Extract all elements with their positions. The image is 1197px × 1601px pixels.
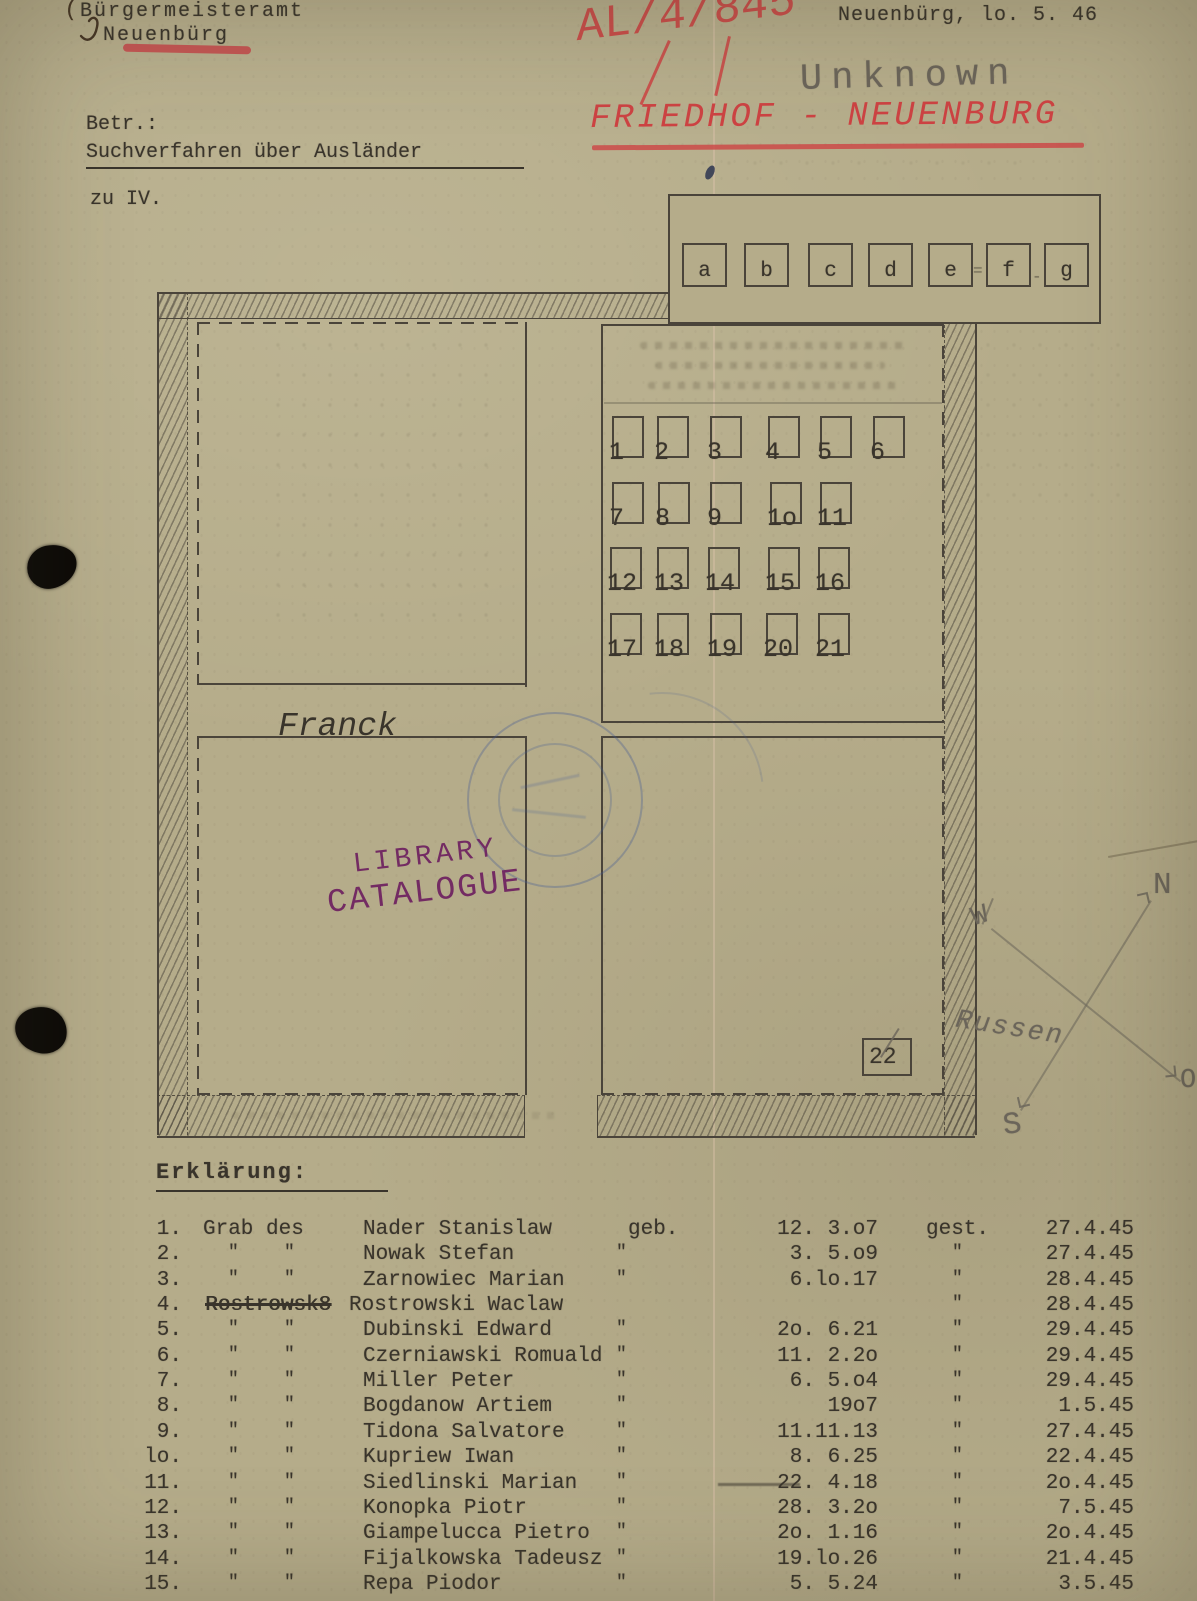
geb-ditto: ": [616, 1243, 627, 1263]
death-date: 27.4.45: [998, 1218, 1134, 1241]
legend-cell-f: f: [986, 243, 1031, 287]
grave-name: Nader Stanislaw: [363, 1218, 552, 1241]
death-date: 28.4.45: [998, 1269, 1134, 1292]
ditto-mark: ": [228, 1472, 239, 1492]
gest-ditto: ": [952, 1370, 963, 1390]
ditto-mark: ": [284, 1345, 295, 1365]
grave-name: Nowak Stefan: [363, 1243, 514, 1266]
grave-name: Dubinski Edward: [363, 1319, 552, 1342]
ditto-mark: ": [228, 1446, 239, 1466]
list-row: 7.""Miller Peter"6. 5.o4"29.4.45: [0, 1370, 1197, 1394]
grave-box-15: 15: [768, 547, 800, 589]
grave-number: 5: [817, 440, 832, 465]
list-heading: Erklärung:: [156, 1160, 388, 1192]
geb-ditto: ": [616, 1345, 627, 1365]
birth-date: 19o7: [730, 1395, 878, 1418]
gest-ditto: ": [952, 1522, 963, 1542]
grave-box-6: 6: [873, 416, 905, 458]
ditto-mark: ": [284, 1370, 295, 1390]
ditto-mark: ": [284, 1548, 295, 1568]
grave-number: 19: [707, 637, 737, 662]
cemetery-wall-bottom-right: [597, 1095, 975, 1138]
row-number: 14.: [126, 1548, 182, 1571]
birth-date: 6. 5.o4: [730, 1370, 878, 1393]
pencil-note: Unknown: [799, 53, 1018, 101]
compass-label-north: N: [1153, 868, 1172, 903]
grave-number: 1o: [767, 506, 797, 531]
grave-number: 13: [654, 571, 684, 596]
list-row: 6.""Czerniawski Romuald"11. 2.2o"29.4.45: [0, 1345, 1197, 1369]
grave-number: 17: [607, 637, 637, 662]
legend-stray-mark: =: [973, 262, 983, 280]
row-number: 7.: [126, 1370, 182, 1393]
ditto-mark: ": [228, 1395, 239, 1415]
cemetery-wall-top: [157, 292, 668, 319]
death-date: 29.4.45: [998, 1370, 1134, 1393]
library-catalogue-stamp: LIBRARY CATALOGUE: [322, 831, 525, 922]
geb-ditto: ": [616, 1421, 627, 1441]
grave-box-8: 8: [658, 482, 690, 524]
grave-box-18: 18: [657, 613, 689, 655]
red-underline-mark: [123, 44, 251, 55]
ditto-mark: ": [228, 1319, 239, 1339]
ditto-mark: ": [228, 1345, 239, 1365]
ditto-mark: ": [284, 1522, 295, 1542]
ditto-mark: ": [284, 1395, 295, 1415]
row-number: 15.: [126, 1573, 182, 1596]
betreff-label: Betr.:: [86, 113, 158, 136]
grave-box-3: 3: [710, 416, 742, 458]
birth-date: 3. 5.o9: [730, 1243, 878, 1266]
red-file-number: AL/4/845: [576, 0, 796, 54]
grave-box-19: 19: [710, 613, 742, 655]
geb-label: geb.: [628, 1218, 678, 1241]
list-row: 15.""Repa Piodor"5. 5.24"3.5.45: [0, 1573, 1197, 1597]
geb-ditto: ": [616, 1573, 627, 1593]
ditto-mark: ": [284, 1421, 295, 1441]
grave-box-4: 4: [768, 416, 800, 458]
grave-number: 20: [763, 637, 793, 662]
gest-ditto: ": [952, 1497, 963, 1517]
ditto-mark: ": [284, 1446, 295, 1466]
grave-box-20: 20: [766, 613, 798, 655]
betreff-subject: Suchverfahren über Ausländer: [86, 141, 524, 169]
grave-number: 9: [707, 506, 722, 531]
list-row: 8.""Bogdanow Artiem"19o7"1.5.45: [0, 1395, 1197, 1419]
grave-number: 22: [869, 1044, 897, 1070]
pencil-strike: [718, 1483, 800, 1486]
handwritten-check-mark: [78, 14, 112, 44]
geb-ditto: ": [616, 1269, 627, 1289]
grave-number: 11: [817, 506, 847, 531]
gest-label: gest.: [926, 1218, 989, 1241]
row-number: 6.: [126, 1345, 182, 1368]
list-row: lo.""Kupriew Iwan"8. 6.25"22.4.45: [0, 1446, 1197, 1470]
grave-box-12: 12: [610, 547, 642, 589]
red-pen-stroke: [640, 40, 671, 105]
ditto-mark: ": [284, 1472, 295, 1492]
ditto-mark: ": [228, 1573, 239, 1593]
grave-name: Tidona Salvatore: [363, 1421, 565, 1444]
birth-date: 19.lo.26: [730, 1548, 878, 1571]
death-date: 2o.4.45: [998, 1522, 1134, 1545]
grave-name: Siedlinski Marian: [363, 1472, 577, 1495]
grave-name: Repa Piodor: [363, 1573, 502, 1596]
ditto-mark: ": [284, 1573, 295, 1593]
ditto-mark: ": [228, 1269, 239, 1289]
geb-ditto: ": [616, 1446, 627, 1466]
grave-name: Czerniawski Romuald: [363, 1345, 602, 1368]
birth-date: 5. 5.24: [730, 1573, 878, 1596]
ditto-mark: ": [228, 1497, 239, 1517]
birth-date: 11. 2.2o: [730, 1345, 878, 1368]
ditto-mark: ": [228, 1522, 239, 1542]
ditto-mark: ": [228, 1421, 239, 1441]
death-date: 22.4.45: [998, 1446, 1134, 1469]
ditto-mark: ": [284, 1243, 295, 1263]
red-heading: FRIEDHOF - NEUENBURG: [590, 96, 1058, 138]
list-row: 3.""Zarnowiec Marian"6.lo.17"28.4.45: [0, 1269, 1197, 1293]
struck-name: Rostrowsk8: [205, 1294, 331, 1317]
birth-date: 6.lo.17: [730, 1269, 878, 1292]
ditto-mark: ": [228, 1370, 239, 1390]
birth-date: 2o. 6.21: [730, 1319, 878, 1342]
ditto-mark: ": [284, 1497, 295, 1517]
legend-cell-d: d: [868, 243, 913, 287]
gest-ditto: ": [952, 1548, 963, 1568]
compass-line-sn: [1020, 900, 1151, 1111]
grave-name: Konopka Piotr: [363, 1497, 527, 1520]
geb-ditto: ": [616, 1522, 627, 1542]
birth-date: 28. 3.2o: [730, 1497, 878, 1520]
gest-ditto: ": [952, 1573, 963, 1593]
gest-ditto: ": [952, 1446, 963, 1466]
gest-ditto: ": [952, 1243, 963, 1263]
cemetery-wall-bottom-left: [157, 1095, 525, 1138]
death-date: 28.4.45: [998, 1294, 1134, 1317]
grave-number: 2: [654, 440, 669, 465]
grave-box-13: 13: [657, 547, 689, 589]
bleed-through-marks: [690, 148, 1020, 182]
row-number: 8.: [126, 1395, 182, 1418]
grave-number: 8: [655, 506, 670, 531]
legend-cell-a: a: [682, 243, 727, 287]
punch-hole: [12, 1003, 71, 1057]
row-number: lo.: [126, 1446, 182, 1469]
red-pen-stroke: [714, 36, 731, 96]
death-date: 27.4.45: [998, 1243, 1134, 1266]
cemetery-wall-left: [157, 292, 188, 1135]
legend-cell-e: e: [928, 243, 973, 287]
death-date: 1.5.45: [998, 1395, 1134, 1418]
list-row: 9.""Tidona Salvatore"11.11.13"27.4.45: [0, 1421, 1197, 1445]
punch-hole: [23, 540, 81, 592]
geb-ditto: ": [616, 1319, 627, 1339]
grave-box-1o: 1o: [770, 482, 802, 524]
grave-number: 21: [815, 637, 845, 662]
gest-ditto: ": [952, 1319, 963, 1339]
death-date: 21.4.45: [998, 1548, 1134, 1571]
grave-number: 6: [870, 440, 885, 465]
grave-box-14: 14: [708, 547, 740, 589]
grave-number: 18: [654, 637, 684, 662]
grave-number: 12: [607, 571, 637, 596]
grave-number: 3: [707, 440, 722, 465]
row-number: 9.: [126, 1421, 182, 1444]
grave-box-9: 9: [710, 482, 742, 524]
office-name: Bürgermeisteramt: [80, 0, 304, 23]
list-row: 4.Rostrowsk8Rostrowski Waclaw"28.4.45: [0, 1294, 1197, 1318]
grave-name: Rostrowski Waclaw: [349, 1294, 563, 1317]
grave-box-11: 11: [820, 482, 852, 524]
blue-ink-signature: Franck: [278, 708, 397, 745]
death-date: 3.5.45: [998, 1573, 1134, 1596]
list-row: 5.""Dubinski Edward"2o. 6.21"29.4.45: [0, 1319, 1197, 1343]
grab-des-label: Grab des: [203, 1218, 304, 1241]
grave-name: Fijalkowska Tadeusz: [363, 1548, 602, 1571]
death-date: 29.4.45: [998, 1345, 1134, 1368]
birth-date: 11.11.13: [730, 1421, 878, 1444]
list-row: 14.""Fijalkowska Tadeusz"19.lo.26"21.4.4…: [0, 1548, 1197, 1572]
compass-arrow-east: [1164, 1065, 1176, 1077]
legend-cell-c: c: [808, 243, 853, 287]
legend-stray-mark: -: [1032, 268, 1042, 286]
grave-number: 1: [609, 440, 624, 465]
bleed-through-text: [640, 342, 910, 349]
place-date-line: Neuenbürg, lo. 5. 46: [838, 4, 1098, 27]
row-number: 11.: [126, 1472, 182, 1495]
grave-box-2: 2: [657, 416, 689, 458]
grave-number: 4: [765, 440, 780, 465]
grave-box-21: 21: [818, 613, 850, 655]
list-row: 13.""Giampelucca Pietro"2o. 1.16"2o.4.45: [0, 1522, 1197, 1546]
ditto-mark: ": [228, 1243, 239, 1263]
death-date: 7.5.45: [998, 1497, 1134, 1520]
legend-cell-g: g: [1044, 243, 1089, 287]
ditto-mark: ": [228, 1548, 239, 1568]
death-date: 2o.4.45: [998, 1472, 1134, 1495]
compass-label-east: O: [1180, 1066, 1196, 1096]
list-row: 1.Grab desNader Stanislawgeb.12. 3.o7ges…: [0, 1218, 1197, 1242]
gest-ditto: ": [952, 1472, 963, 1492]
grave-name: Zarnowiec Marian: [363, 1269, 565, 1292]
grave-name: Giampelucca Pietro: [363, 1522, 590, 1545]
birth-date: 12. 3.o7: [730, 1218, 878, 1241]
bleed-through-marks: [975, 330, 1125, 500]
gest-ditto: ": [952, 1421, 963, 1441]
grave-box-16: 16: [818, 547, 850, 589]
geb-ditto: ": [616, 1472, 627, 1492]
bleed-through-text: [655, 362, 885, 369]
death-date: 29.4.45: [998, 1319, 1134, 1342]
grave-name: Kupriew Iwan: [363, 1446, 514, 1469]
grave-number: 16: [815, 571, 845, 596]
bleed-through-text: [648, 382, 898, 389]
row-number: 13.: [126, 1522, 182, 1545]
gest-ditto: ": [952, 1269, 963, 1289]
geb-ditto: ": [616, 1370, 627, 1390]
row-number: 2.: [126, 1243, 182, 1266]
grave-box-5: 5: [820, 416, 852, 458]
row-number: 1.: [126, 1218, 182, 1241]
grave-number: 7: [609, 506, 624, 531]
list-row: 11.""Siedlinski Marian"22. 4.18"2o.4.45: [0, 1472, 1197, 1496]
birth-date: 2o. 1.16: [730, 1522, 878, 1545]
geb-ditto: ": [616, 1548, 627, 1568]
row-number: 5.: [126, 1319, 182, 1342]
row-number: 4.: [126, 1294, 182, 1317]
legend-cell-b: b: [744, 243, 789, 287]
grave-number: 15: [765, 571, 795, 596]
grave-box-22: 22: [862, 1038, 912, 1076]
grave-name: Bogdanow Artiem: [363, 1395, 552, 1418]
reference-note: zu IV.: [90, 188, 162, 211]
gest-ditto: ": [952, 1395, 963, 1415]
geb-ditto: ": [616, 1497, 627, 1517]
grave-box-17: 17: [610, 613, 642, 655]
death-date: 27.4.45: [998, 1421, 1134, 1444]
gest-ditto: ": [952, 1345, 963, 1365]
list-row: 2.""Nowak Stefan"3. 5.o9"27.4.45: [0, 1243, 1197, 1267]
grave-box-1: 1: [612, 416, 644, 458]
scanned-document-page: Bürgermeisteramt Neuenbürg ( Neuenbürg, …: [0, 0, 1197, 1601]
compass-label-south: S: [1001, 1107, 1024, 1144]
birth-date: 8. 6.25: [730, 1446, 878, 1469]
grave-number: 14: [705, 571, 735, 596]
grave-box-7: 7: [612, 482, 644, 524]
grave-name: Miller Peter: [363, 1370, 514, 1393]
bleed-through-marks: [265, 330, 495, 640]
row-number: 12.: [126, 1497, 182, 1520]
office-city: Neuenbürg: [103, 24, 229, 47]
list-row: 12.""Konopka Piotr"28. 3.2o"7.5.45: [0, 1497, 1197, 1521]
paper-fold-line: [1108, 840, 1197, 858]
row-number: 3.: [126, 1269, 182, 1292]
gest-ditto: ": [952, 1294, 963, 1314]
geb-ditto: ": [616, 1395, 627, 1415]
ditto-mark: ": [284, 1269, 295, 1289]
ditto-mark: ": [284, 1319, 295, 1339]
